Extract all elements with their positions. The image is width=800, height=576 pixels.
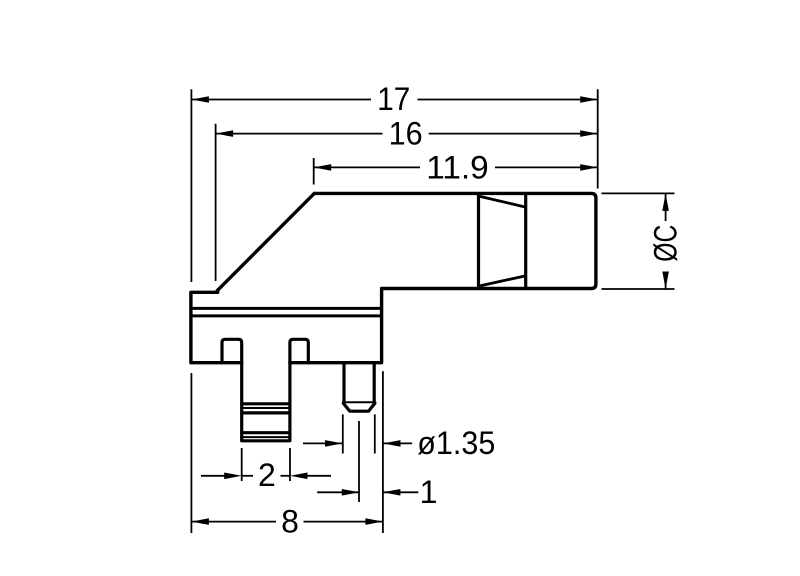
svg-text:16: 16 [389, 116, 423, 152]
svg-text:ø1.35: ø1.35 [417, 425, 495, 461]
svg-text:2: 2 [258, 457, 276, 493]
svg-text:8: 8 [281, 504, 299, 540]
svg-text:ØC: ØC [648, 225, 684, 262]
svg-text:1: 1 [420, 474, 438, 510]
svg-text:11.9: 11.9 [426, 149, 489, 185]
svg-text:17: 17 [377, 81, 410, 117]
